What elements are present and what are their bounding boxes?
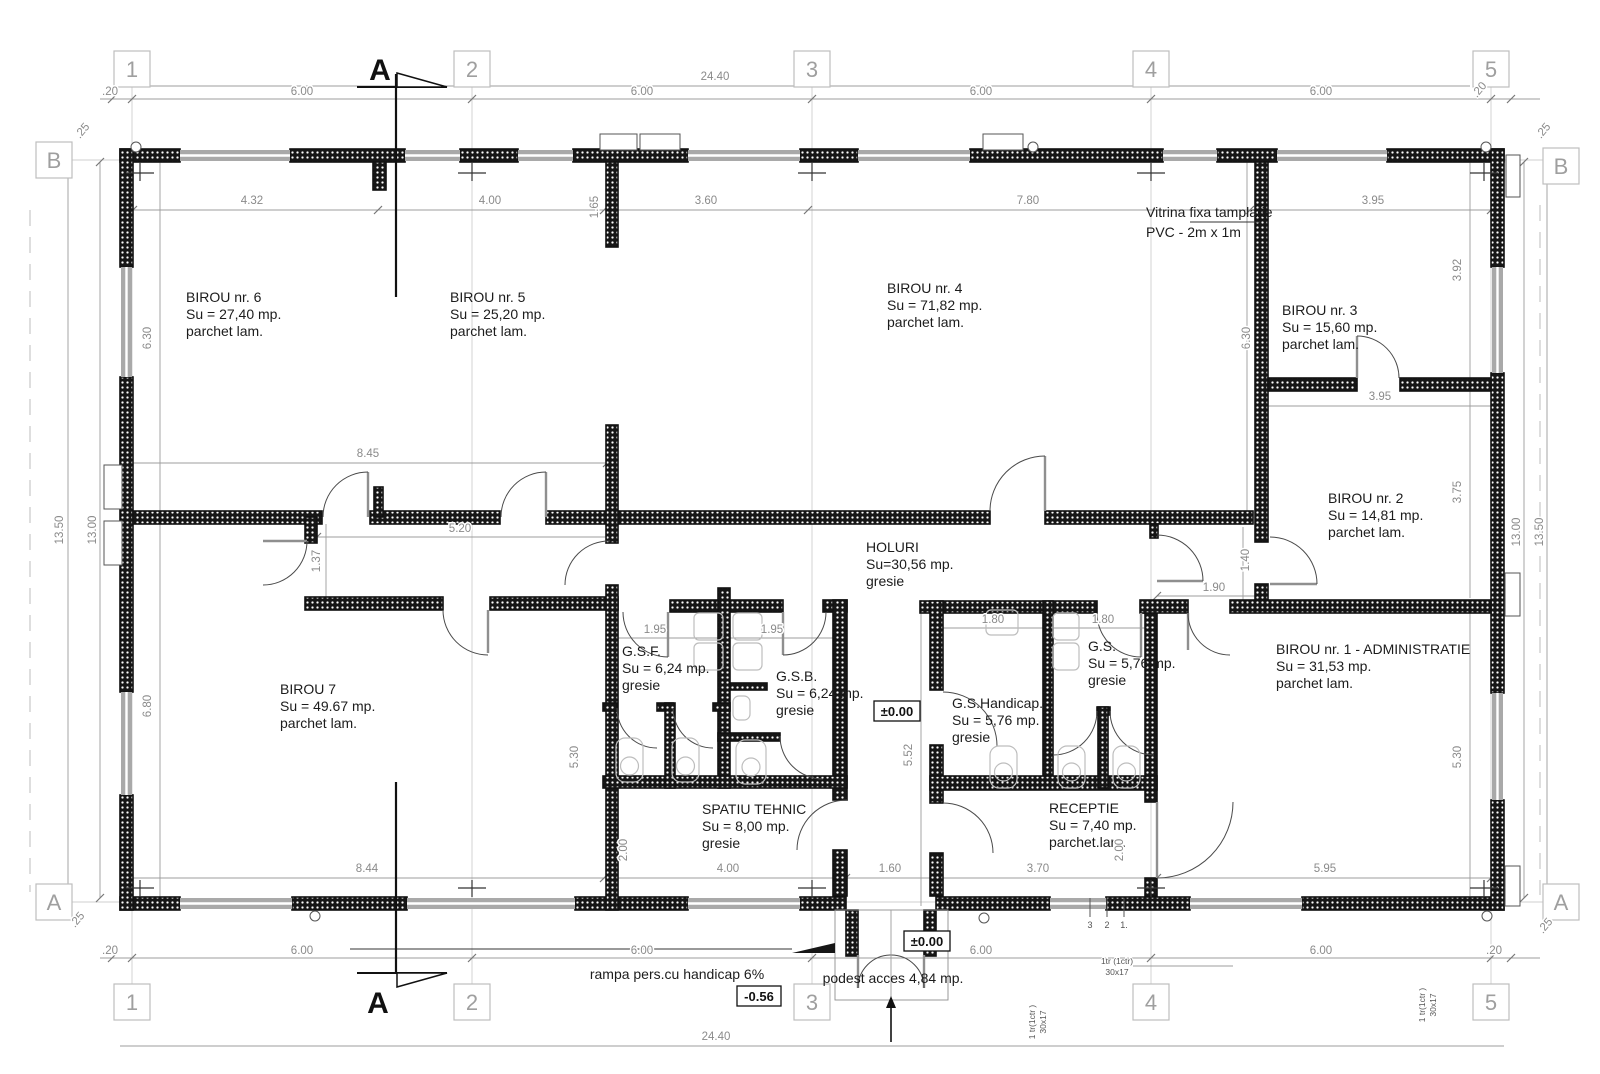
dim: 13.00: [1511, 518, 1523, 547]
svg-text:G.S.: G.S.: [1088, 638, 1116, 654]
svg-text:gresie: gresie: [702, 835, 740, 851]
svg-text:BIROU nr. 4: BIROU nr. 4: [887, 280, 963, 296]
room-label-holuri: HOLURI Su=30,56 mp. gresie: [866, 539, 954, 589]
svg-text:Su = 31,53 mp.: Su = 31,53 mp.: [1276, 658, 1371, 674]
room-label-gs-handicap: G.S.Handicap. Su = 5,76 mp. gresie: [952, 695, 1043, 745]
dim: .20: [1486, 945, 1502, 957]
equipment-box: [640, 134, 680, 150]
dim: 6.00: [631, 86, 653, 98]
room-label-gsf: G.S.F. Su = 6,24 mp. gresie: [622, 643, 710, 693]
dim: 6.00: [631, 945, 653, 957]
svg-text:BIROU nr. 1 - ADMINISTRATIE: BIROU nr. 1 - ADMINISTRATIE: [1276, 641, 1470, 657]
stair-note-line1: 1tr (1ctr): [1101, 956, 1133, 966]
room-label-birou-2: BIROU nr. 2 Su = 14,81 mp. parchet lam.: [1328, 490, 1423, 540]
equipment-box: [600, 134, 637, 150]
room-label-spatiu-tehnic: SPATIU TEHNIC Su = 8,00 mp. gresie: [702, 801, 806, 851]
room-label-birou-5: BIROU nr. 5 Su = 25,20 mp. parchet lam.: [450, 289, 545, 339]
svg-text:gresie: gresie: [622, 677, 660, 693]
ramp-wedge-icon: [792, 943, 835, 953]
svg-text:BIROU nr. 3: BIROU nr. 3: [1282, 302, 1358, 318]
dim: 4.00: [717, 863, 739, 875]
dim: 6.00: [1310, 86, 1332, 98]
section-label-top: A: [369, 54, 391, 87]
stair-note-side1-line1: 1 tr(1ctr ): [1027, 1005, 1037, 1040]
dim: 6.00: [1310, 945, 1332, 957]
room-labels: BIROU nr. 6 Su = 27,40 mp. parchet lam. …: [186, 280, 1470, 851]
step-number-2: 2: [1104, 920, 1109, 930]
dim: 6.30: [1241, 327, 1253, 349]
step-number-1: 1.: [1120, 920, 1128, 930]
dim: 13.50: [54, 516, 66, 545]
level-hall: ±0.00: [881, 704, 913, 719]
dim: 3.95: [1362, 195, 1384, 207]
dim: 8.45: [357, 448, 379, 460]
stair-note-side1-line2: 30x17: [1038, 1010, 1048, 1033]
vent-circle-icon: [979, 913, 989, 923]
svg-text:Su = 6,24 mp.: Su = 6,24 mp.: [622, 660, 710, 676]
dim: 6.00: [291, 945, 313, 957]
vent-circle-icon: [1481, 142, 1491, 152]
grid-col-3-top: 3: [806, 57, 818, 82]
svg-text:parchet lam.: parchet lam.: [1282, 336, 1359, 352]
svg-text:parchet lam.: parchet lam.: [887, 314, 964, 330]
ramp-note: rampa pers.cu handicap 6%: [590, 966, 764, 982]
svg-text:Su = 5,76 mp.: Su = 5,76 mp.: [1088, 655, 1176, 671]
svg-text:Su = 5,76 mp.: Su = 5,76 mp.: [952, 712, 1040, 728]
svg-text:BIROU 7: BIROU 7: [280, 681, 336, 697]
svg-text:gresie: gresie: [866, 573, 904, 589]
dim: 5.52: [903, 744, 915, 766]
sink-icon: [1053, 643, 1079, 670]
dim: 6.00: [291, 86, 313, 98]
vent-circle-icon: [131, 142, 141, 152]
svg-text:Su = 14,81 mp.: Su = 14,81 mp.: [1328, 507, 1423, 523]
svg-text:G.S.B.: G.S.B.: [776, 668, 817, 684]
grid-col-3-bottom: 3: [806, 990, 818, 1015]
svg-text:parchet lam.: parchet lam.: [450, 323, 527, 339]
dim: 1.37: [311, 550, 323, 572]
dim: 3.70: [1027, 863, 1049, 875]
sanitary-fixtures: [616, 610, 1140, 788]
svg-text:SPATIU TEHNIC: SPATIU TEHNIC: [702, 801, 806, 817]
dim: 5.30: [1452, 746, 1464, 768]
grid-col-5-top: 5: [1485, 57, 1497, 82]
dim: 3.92: [1452, 259, 1464, 281]
room-label-birou-1: BIROU nr. 1 - ADMINISTRATIE Su = 31,53 m…: [1276, 641, 1470, 691]
step-number-3: 3: [1087, 920, 1092, 930]
grid-col-5-bottom: 5: [1485, 990, 1497, 1015]
room-label-gs: G.S. Su = 5,76 mp. gresie: [1088, 638, 1176, 688]
svg-text:gresie: gresie: [776, 702, 814, 718]
dim: 1.90: [1203, 582, 1225, 594]
grid-col-2-top: 2: [466, 57, 478, 82]
equipment-box: [1505, 573, 1520, 616]
dim-total-bottom: 24.40: [702, 1031, 731, 1043]
vitrina-note-line2: PVC - 2m x 1m: [1146, 224, 1241, 240]
dim: 13.50: [1534, 518, 1546, 547]
dim: 1.40: [1240, 549, 1252, 571]
dim: 3.95: [1369, 391, 1391, 403]
vitrina-note-line1: Vitrina fixa tamplarie: [1146, 204, 1273, 220]
section-flag-icon: [397, 73, 447, 87]
svg-text:parchet lam.: parchet lam.: [1276, 675, 1353, 691]
dimension-ticks: [64, 95, 1528, 962]
equipment-box: [1505, 866, 1520, 906]
svg-text:gresie: gresie: [952, 729, 990, 745]
dim: 2.00: [1114, 839, 1126, 861]
dim: .25: [73, 121, 92, 141]
level-ramp: -0.56: [744, 989, 774, 1004]
equipment-box: [104, 521, 122, 565]
dim: 1.80: [982, 614, 1004, 626]
dim-total-top: 24.40: [701, 71, 730, 83]
svg-text:gresie: gresie: [1088, 672, 1126, 688]
grid-row-a-right: A: [1554, 890, 1569, 915]
dim: 4.32: [241, 195, 263, 207]
grid-col-2-bottom: 2: [466, 990, 478, 1015]
svg-text:parchet lam.: parchet lam.: [280, 715, 357, 731]
doors: [263, 336, 1399, 988]
svg-text:Su = 25,20 mp.: Su = 25,20 mp.: [450, 306, 545, 322]
dim: 7.80: [1017, 195, 1039, 207]
podest-note: podest acces 4,84 mp.: [823, 970, 964, 986]
grid-col-4-bottom: 4: [1145, 990, 1157, 1015]
dim: .25: [1534, 121, 1553, 141]
svg-text:parchet lam.: parchet lam.: [1328, 524, 1405, 540]
room-label-gsb: G.S.B. Su = 6,24 mp. gresie: [776, 668, 864, 718]
equipment-box: [104, 465, 122, 509]
dim: 1.60: [879, 863, 901, 875]
dim: 13.00: [87, 516, 99, 545]
level-entry: ±0.00: [911, 934, 943, 949]
svg-text:G.S.F.: G.S.F.: [622, 643, 661, 659]
floor-plan-sheet: A A 1 2 3 4 5 1 2 3 4 5 B A B A BIROU nr…: [0, 0, 1600, 1074]
grid-col-4-top: 4: [1145, 57, 1157, 82]
grid-lines: [30, 87, 1543, 984]
dim: 3.75: [1452, 481, 1464, 503]
stair-note-line2: 30x17: [1105, 967, 1128, 977]
dim: 4.00: [479, 195, 501, 207]
dim: .20: [102, 945, 118, 957]
dim: 1.95: [761, 624, 783, 636]
dim: 1.65: [589, 196, 601, 218]
room-label-birou-4: BIROU nr. 4 Su = 71,82 mp. parchet lam.: [887, 280, 982, 330]
stair-note-side2-line2: 30x17: [1428, 993, 1438, 1016]
svg-text:BIROU nr. 5: BIROU nr. 5: [450, 289, 526, 305]
dim: 5.20: [449, 523, 471, 535]
grid-row-a-left: A: [47, 890, 62, 915]
svg-text:Su = 49.67 mp.: Su = 49.67 mp.: [280, 698, 375, 714]
svg-text:BIROU nr. 6: BIROU nr. 6: [186, 289, 262, 305]
svg-text:Su=30,56 mp.: Su=30,56 mp.: [866, 556, 954, 572]
equipment-box: [1506, 155, 1520, 197]
dim: 5.95: [1314, 863, 1336, 875]
section-flag-icon: [397, 973, 447, 987]
svg-text:G.S.Handicap.: G.S.Handicap.: [952, 695, 1043, 711]
equipment-box: [983, 134, 1023, 150]
grid-row-b-right: B: [1554, 154, 1569, 179]
dim: 5.30: [569, 746, 581, 768]
grid-col-1-bottom: 1: [126, 990, 138, 1015]
sink-icon: [733, 643, 762, 670]
svg-text:Su = 6,24 mp.: Su = 6,24 mp.: [776, 685, 864, 701]
stair-note-side2-line1: 1 tr(1ctr ): [1417, 988, 1427, 1023]
dim: 6.00: [970, 86, 992, 98]
svg-text:HOLURI: HOLURI: [866, 539, 919, 555]
grid-row-b-left: B: [47, 148, 62, 173]
svg-text:Su = 8,00 mp.: Su = 8,00 mp.: [702, 818, 790, 834]
svg-text:RECEPTIE: RECEPTIE: [1049, 800, 1119, 816]
urinal-icon: [733, 696, 750, 720]
dim: 2.00: [618, 839, 630, 861]
dim: .20: [102, 86, 118, 98]
svg-text:Su = 15,60 mp.: Su = 15,60 mp.: [1282, 319, 1377, 335]
vent-circle-icon: [1028, 142, 1038, 152]
floor-plan-drawing: A A 1 2 3 4 5 1 2 3 4 5 B A B A BIROU nr…: [0, 0, 1600, 1074]
dim: 6.80: [142, 695, 154, 717]
room-label-birou-3: BIROU nr. 3 Su = 15,60 mp. parchet lam.: [1282, 302, 1377, 352]
dim: 8.44: [356, 863, 379, 875]
vent-circle-icon: [310, 911, 320, 921]
room-label-birou-7: BIROU 7 Su = 49.67 mp. parchet lam.: [280, 681, 375, 731]
room-label-birou-6: BIROU nr. 6 Su = 27,40 mp. parchet lam.: [186, 289, 281, 339]
svg-text:Su = 7,40 mp.: Su = 7,40 mp.: [1049, 817, 1137, 833]
grid-col-1-top: 1: [126, 57, 138, 82]
svg-text:Su = 71,82 mp.: Su = 71,82 mp.: [887, 297, 982, 313]
dim: 6.00: [970, 945, 992, 957]
sink-icon: [733, 613, 762, 640]
dim: 3.60: [695, 195, 717, 207]
svg-text:BIROU nr. 2: BIROU nr. 2: [1328, 490, 1404, 506]
svg-text:Su = 27,40 mp.: Su = 27,40 mp.: [186, 306, 281, 322]
vent-circle-icon: [1482, 911, 1492, 921]
dim: 1.80: [1092, 614, 1114, 626]
dim: 1.95: [644, 624, 666, 636]
sink-icon: [1053, 613, 1079, 640]
entry-arrow-icon: [886, 996, 896, 1042]
section-label-bottom: A: [367, 987, 389, 1020]
svg-text:parchet lam.: parchet lam.: [186, 323, 263, 339]
dim: 6.30: [142, 327, 154, 349]
